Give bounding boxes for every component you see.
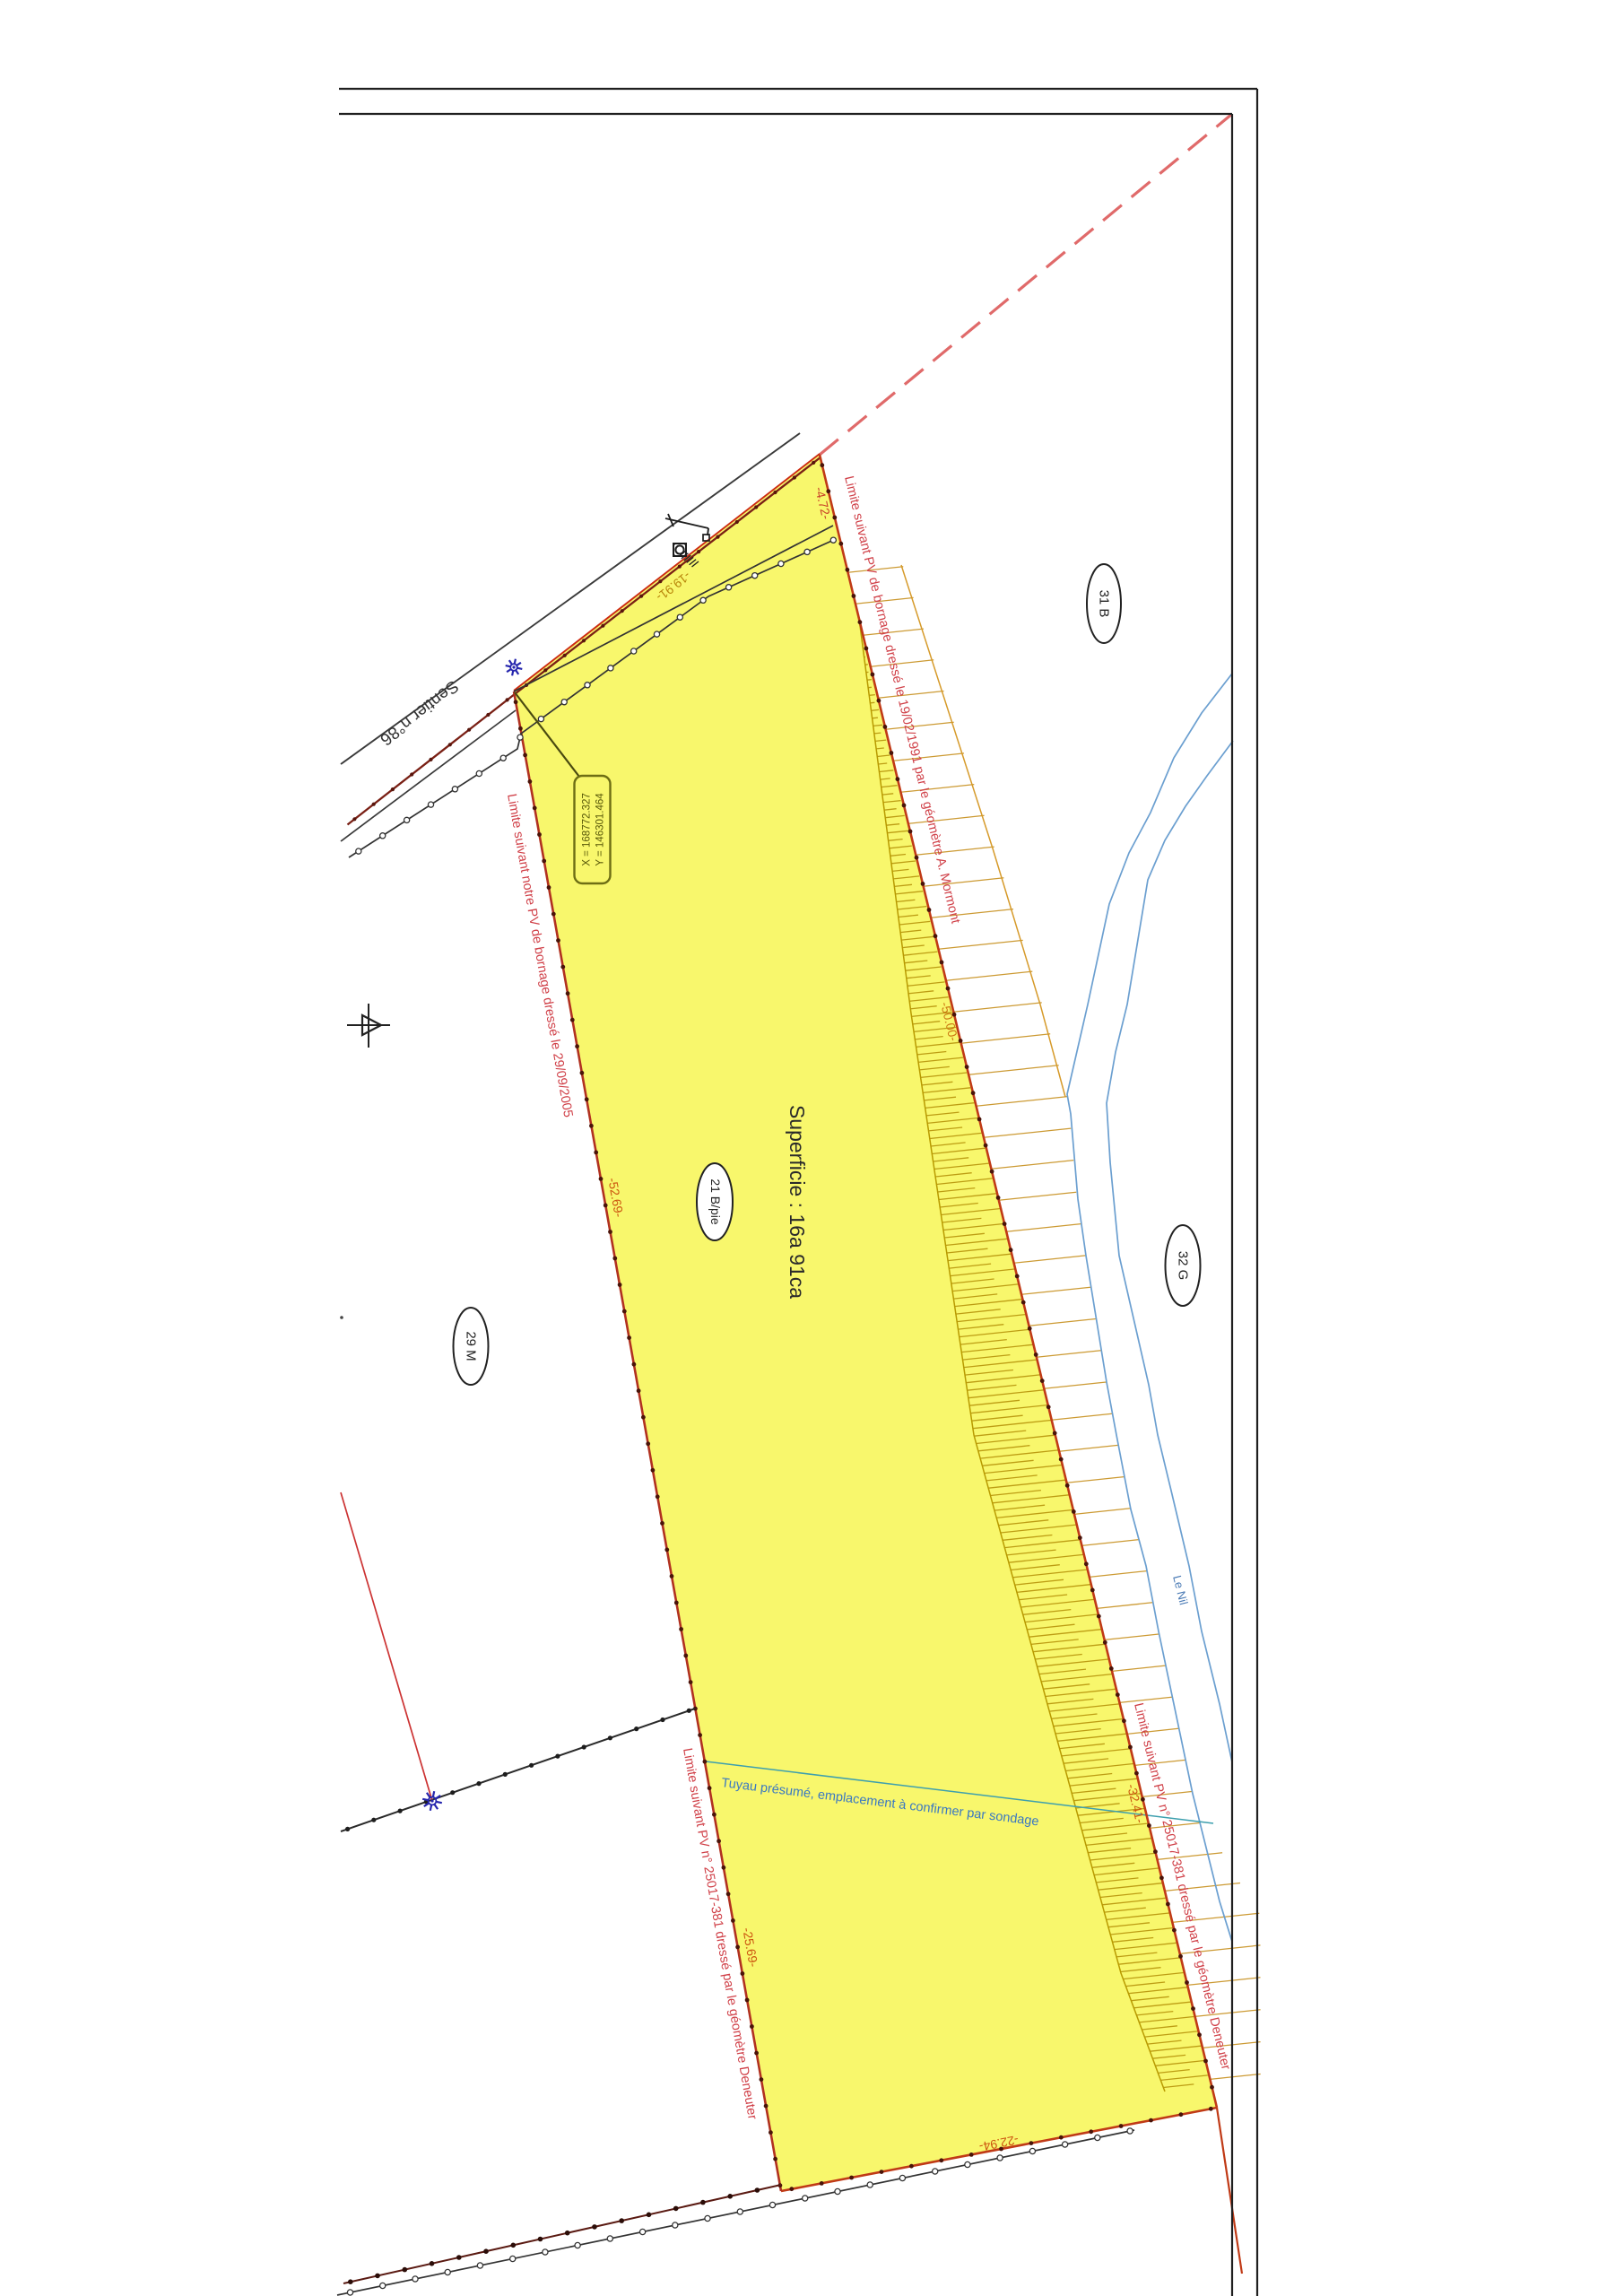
svg-text:Y = 146301.464: Y = 146301.464: [595, 793, 606, 866]
svg-text:29 M: 29 M: [464, 1331, 479, 1361]
svg-text:32 G: 32 G: [1176, 1251, 1191, 1281]
svg-text:21 B/pie: 21 B/pie: [708, 1178, 723, 1225]
svg-text:X = 168772.327: X = 168772.327: [582, 793, 593, 866]
svg-text:31 B: 31 B: [1097, 590, 1112, 618]
svg-text:Superficie : 16a 91ca: Superficie : 16a 91ca: [786, 1105, 809, 1299]
